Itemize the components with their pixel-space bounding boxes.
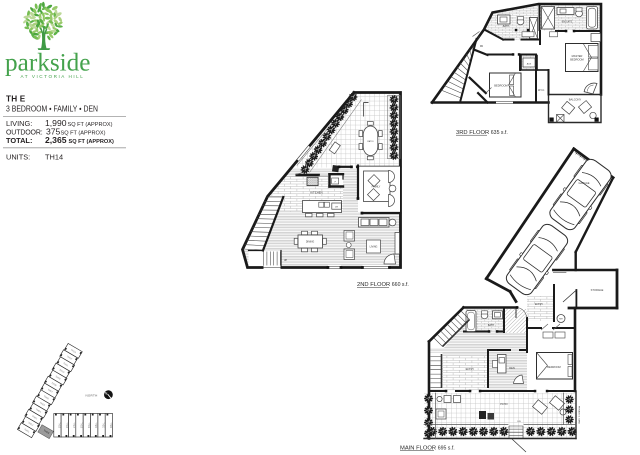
- svg-text:ENSUITE: ENSUITE: [562, 21, 573, 24]
- svg-text:BEDROOM: BEDROOM: [494, 84, 507, 88]
- svg-text:ENTRY: ENTRY: [466, 368, 474, 371]
- svg-text:ENTRY: ENTRY: [535, 303, 543, 306]
- svg-text:BEDROOM: BEDROOM: [570, 58, 583, 62]
- svg-text:W.I.C.: W.I.C.: [538, 88, 545, 92]
- svg-text:STORAGE: STORAGE: [591, 288, 604, 292]
- svg-text:TH19: TH19: [87, 422, 89, 428]
- svg-text:FAMILY: FAMILY: [372, 186, 381, 189]
- svg-text:TH21: TH21: [102, 422, 104, 428]
- svg-text:TH E: TH E: [6, 95, 26, 104]
- svg-text:UNITS:: UNITS:: [6, 153, 30, 162]
- svg-text:PATIO: PATIO: [367, 140, 374, 143]
- svg-text:DINING: DINING: [306, 241, 315, 244]
- svg-text:BATH: BATH: [503, 25, 509, 28]
- svg-text:BEDROOM: BEDROOM: [547, 365, 560, 369]
- svg-text:DN: DN: [517, 421, 521, 423]
- svg-text:PRIVATE S. YARD: PRIVATE S. YARD: [578, 406, 581, 425]
- svg-text:SQ FT (APPROX): SQ FT (APPROX): [68, 122, 113, 128]
- svg-text:2,365: 2,365: [45, 135, 67, 145]
- svg-text:3 BEDROOM • FAMILY • DEN: 3 BEDROOM • FAMILY • DEN: [6, 104, 98, 114]
- svg-text:TH22: TH22: [109, 422, 111, 428]
- svg-text:parkside: parkside: [5, 50, 91, 77]
- svg-text:TH18: TH18: [80, 422, 82, 428]
- svg-text:PATIO: PATIO: [500, 402, 507, 406]
- svg-text:N: N: [105, 392, 108, 396]
- svg-text:3RD FLOOR 635 s.f.: 3RD FLOOR 635 s.f.: [456, 130, 508, 136]
- svg-text:UP: UP: [284, 259, 288, 262]
- svg-text:DEN: DEN: [509, 366, 515, 370]
- svg-text:TH16: TH16: [65, 422, 67, 428]
- svg-text:SQ FT (APPROX): SQ FT (APPROX): [69, 139, 115, 145]
- svg-text:MASTER: MASTER: [572, 54, 583, 58]
- svg-text:LIVING: LIVING: [370, 246, 378, 249]
- svg-text:TH15: TH15: [58, 422, 60, 428]
- svg-text:TH17: TH17: [72, 422, 74, 428]
- svg-text:KITCHEN: KITCHEN: [310, 191, 322, 195]
- svg-text:2ND FLOOR 660 s.f.: 2ND FLOOR 660 s.f.: [357, 282, 409, 288]
- svg-text:TOTAL:: TOTAL:: [6, 136, 32, 145]
- svg-text:DN: DN: [480, 46, 484, 48]
- svg-text:GARAGE: GARAGE: [578, 181, 589, 185]
- svg-text:TH14: TH14: [45, 153, 63, 162]
- svg-text:BATH: BATH: [488, 324, 494, 327]
- svg-text:LIVING:: LIVING:: [6, 119, 32, 128]
- svg-text:AT VICTORIA HILL: AT VICTORIA HILL: [21, 74, 85, 79]
- svg-text:NORTH: NORTH: [85, 393, 97, 397]
- svg-text:DW: DW: [335, 207, 338, 209]
- svg-text:AUX: AUX: [527, 63, 532, 66]
- svg-text:SQ FT (APPROX): SQ FT (APPROX): [61, 131, 106, 137]
- svg-text:BALCONY: BALCONY: [569, 98, 582, 102]
- svg-text:TH20: TH20: [94, 422, 96, 428]
